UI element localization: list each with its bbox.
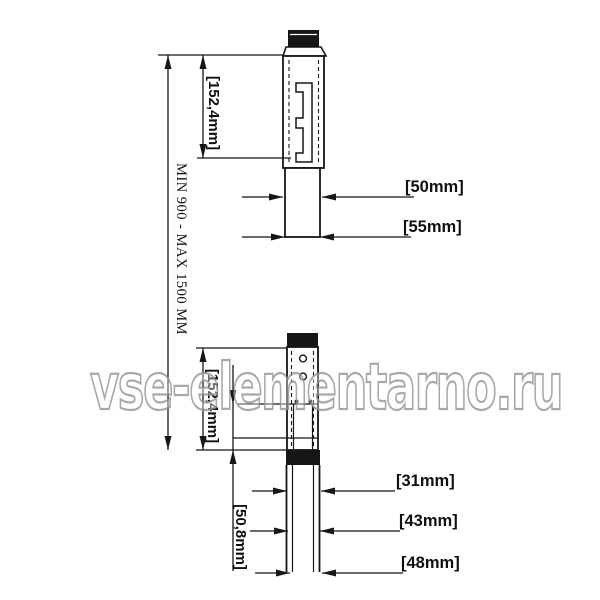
upper-section-length-label: [152,4mm] xyxy=(205,63,221,163)
upper-pole-collar xyxy=(283,47,326,56)
upper-pole-tube xyxy=(285,168,320,237)
pole-drawing xyxy=(0,0,600,600)
arrow-left-dim50 xyxy=(322,194,336,201)
clamp-band xyxy=(286,450,320,465)
bottom-tube-inner-label: [31mm] xyxy=(396,472,455,490)
upper-pole-assembly xyxy=(283,30,326,237)
overall-height-label: MIN 900 - MAX 1500 MM xyxy=(172,139,190,359)
bottom-tube-mid-label: [43mm] xyxy=(399,512,458,530)
upper-pole-top-cap xyxy=(288,30,319,47)
arrow-right-dim55 xyxy=(271,234,285,241)
upper-tube-base-label: [55mm] xyxy=(403,218,462,236)
lower-section-length-label: [152,4mm] xyxy=(204,356,220,456)
arrow-up-dim508-bottom xyxy=(230,450,237,464)
mounting-hole-top xyxy=(300,355,307,362)
arrow-right-dim31 xyxy=(273,488,287,495)
arrow-up-overall-top xyxy=(165,55,172,69)
upper-tube-outer-label: [50mm] xyxy=(405,178,464,196)
arrow-right-dim50 xyxy=(269,194,283,201)
lower-pole-top-cap xyxy=(287,333,318,347)
rivet-left xyxy=(295,400,299,404)
mounting-hole-bottom xyxy=(300,373,307,380)
arrow-left-dim31 xyxy=(321,488,335,495)
arrow-right-dim48 xyxy=(276,570,290,577)
technical-drawing-page: MIN 900 - MAX 1500 MM [152,4mm] [50mm] [… xyxy=(0,0,600,600)
lower-overlap-label: [50,8mm] xyxy=(232,492,248,582)
bottom-tube-outer-label: [48mm] xyxy=(401,554,460,572)
arrow-left-dim43 xyxy=(320,528,334,535)
arrow-left-dim55 xyxy=(320,234,334,241)
arrow-left-dim48 xyxy=(322,570,336,577)
arrow-down-overall-bottom xyxy=(165,436,172,450)
arrow-down-dim508-top xyxy=(230,390,237,404)
rivet-right xyxy=(309,400,313,404)
